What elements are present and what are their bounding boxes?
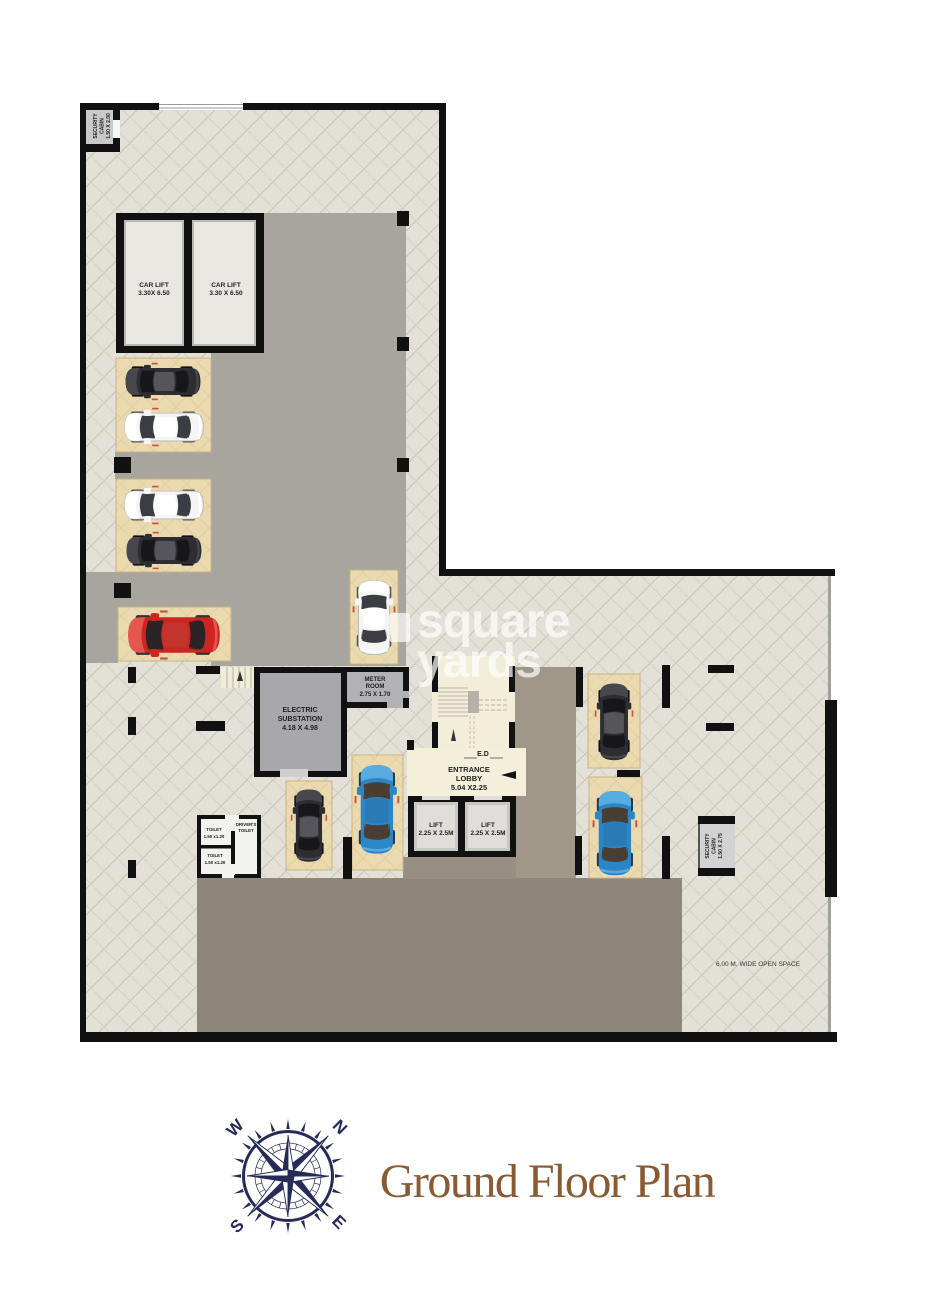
svg-text:TOILET: TOILET (238, 828, 254, 833)
svg-text:ELECTRIC: ELECTRIC (283, 707, 318, 714)
svg-text:2.75 X 1.70: 2.75 X 1.70 (360, 692, 391, 698)
svg-text:3.30 X 6.50: 3.30 X 6.50 (209, 290, 243, 297)
svg-text:LIFT: LIFT (481, 822, 495, 829)
svg-text:E.D: E.D (477, 751, 489, 758)
svg-text:SECURITY: SECURITY (705, 833, 711, 859)
svg-text:CABIN: CABIN (712, 838, 718, 854)
svg-text:1.50 X 2.00: 1.50 X 2.00 (106, 113, 112, 139)
svg-text:3.30X 6.50: 3.30X 6.50 (138, 290, 170, 297)
svg-text:TOILET: TOILET (207, 853, 223, 858)
svg-text:5.04 X2.25: 5.04 X2.25 (451, 783, 487, 792)
svg-text:1.50 x1.20: 1.50 x1.20 (204, 834, 225, 839)
svg-text:DRIVER'S: DRIVER'S (236, 822, 257, 827)
svg-text:LOBBY: LOBBY (456, 774, 482, 783)
svg-text:1.50 X 2.75: 1.50 X 2.75 (718, 833, 724, 859)
svg-text:ENTRANCE: ENTRANCE (448, 765, 490, 774)
svg-text:yards: yards (417, 635, 541, 688)
svg-text:SUBSTATION: SUBSTATION (278, 716, 322, 723)
svg-text:METER: METER (365, 677, 387, 683)
svg-text:6.00 M. WIDE OPEN SPACE: 6.00 M. WIDE OPEN SPACE (716, 961, 801, 968)
svg-text:SECURITY: SECURITY (93, 113, 99, 139)
svg-text:Ground Floor Plan: Ground Floor Plan (380, 1155, 716, 1208)
svg-text:TOILET: TOILET (206, 827, 222, 832)
svg-text:CAR LIFT: CAR LIFT (139, 282, 169, 289)
svg-text:4.18 X 4.98: 4.18 X 4.98 (282, 725, 318, 732)
svg-text:LIFT: LIFT (429, 822, 443, 829)
svg-text:ROOM: ROOM (366, 684, 385, 690)
svg-text:CAR LIFT: CAR LIFT (211, 282, 241, 289)
svg-text:2.25 X 2.5M: 2.25 X 2.5M (418, 830, 453, 837)
svg-text:1.50 x1.20: 1.50 x1.20 (205, 860, 226, 865)
svg-text:2.25 X 2.5M: 2.25 X 2.5M (470, 830, 505, 837)
svg-text:CABIN: CABIN (100, 118, 106, 134)
